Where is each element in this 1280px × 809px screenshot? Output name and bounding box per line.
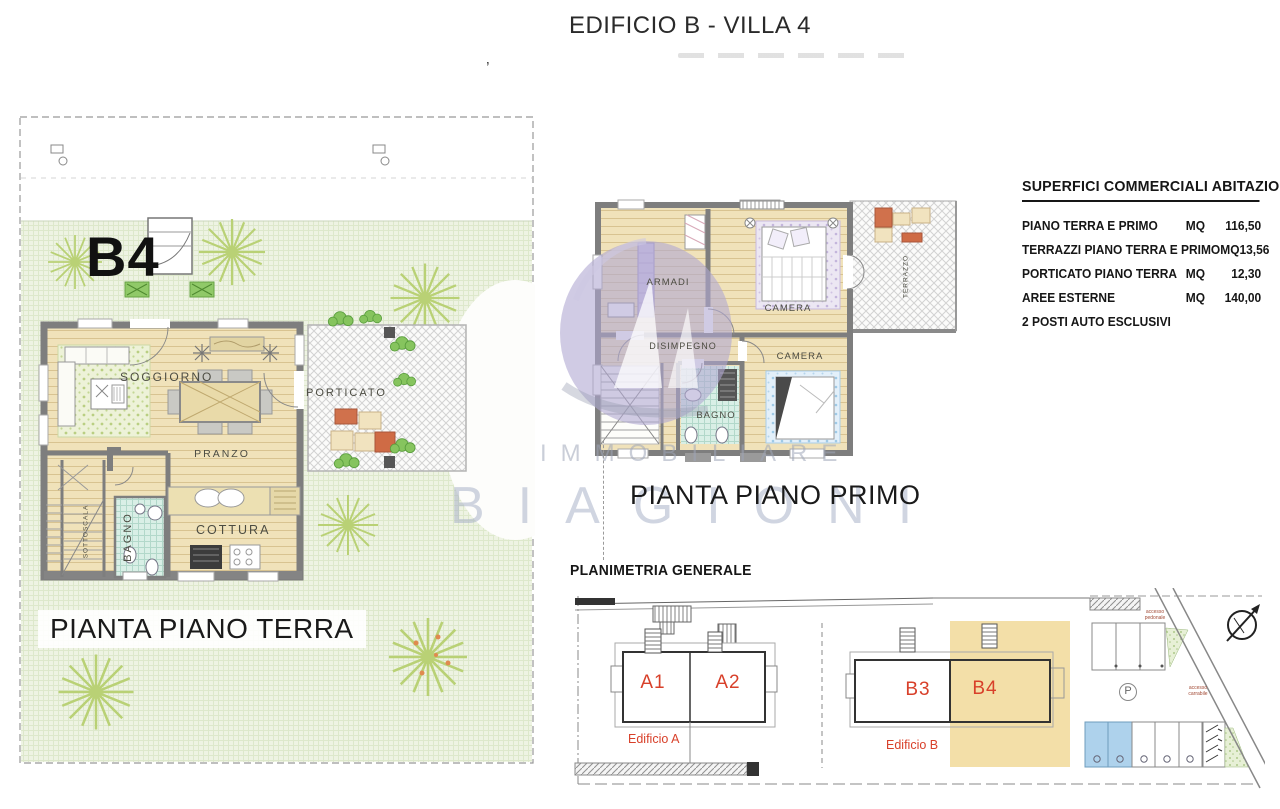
room-label-pranzo: PRANZO <box>192 448 252 460</box>
smudge-artifact <box>678 53 918 58</box>
watermark-logo <box>556 238 736 428</box>
room-label-camera1: CAMERA <box>758 303 818 314</box>
site-building-a-label: Edificio A <box>628 732 679 746</box>
page-title: EDIFICIO B - VILLA 4 <box>440 12 940 40</box>
access-vehicle-label: accesso carrabile <box>1181 686 1215 697</box>
caption-first-floor: PIANTA PIANO PRIMO <box>618 477 933 514</box>
room-label-soggiorno: SOGGIORNO <box>120 370 210 384</box>
room-label-porticato: PORTICATO <box>306 387 378 399</box>
tree-icon <box>59 655 134 730</box>
parking-stalls-bottom <box>1085 722 1202 767</box>
site-plan-title: PLANIMETRIA GENERALE <box>570 562 752 579</box>
building-a <box>611 629 777 775</box>
site-unit-b3: B3 <box>898 679 938 701</box>
ground-floor-plan <box>18 115 535 765</box>
table-row: 2 POSTI AUTO ESCLUSIVI <box>1022 309 1261 333</box>
row-unit: MQ <box>1186 290 1219 305</box>
house-ground-floor <box>39 319 304 581</box>
room-label-bagno-ff: BAGNO <box>688 410 744 421</box>
parking-stalls-top <box>1092 623 1165 670</box>
row-label: 2 POSTI AUTO ESCLUSIVI <box>1022 314 1186 329</box>
compass-icon <box>1227 604 1260 641</box>
camera1-bed <box>745 218 840 309</box>
camera2-bed <box>766 371 840 443</box>
site-unit-b4: B4 <box>965 678 1005 700</box>
row-label: PORTICATO PIANO TERRA <box>1022 266 1186 281</box>
room-label-bagno-gf: BAGNO <box>122 509 134 565</box>
unit-label-b4: B4 <box>86 224 160 289</box>
site-building-b-label: Edificio B <box>886 738 938 752</box>
row-label: AREE ESTERNE <box>1022 290 1186 305</box>
ramp-hatch <box>1203 722 1225 767</box>
flower-tree-icon <box>389 618 467 696</box>
row-unit: MQ <box>1186 218 1219 233</box>
caption-ground-floor: PIANTA PIANO TERRA <box>38 610 366 648</box>
row-value: 116,50 <box>1219 218 1261 233</box>
row-value: 12,30 <box>1219 266 1261 281</box>
row-value: 13,56 <box>1240 242 1270 257</box>
room-label-disimpegno: DISIMPEGNO <box>648 341 718 351</box>
stray-mark: ’ <box>486 60 490 78</box>
hatched-strip <box>1090 598 1140 610</box>
surfaces-table: SUPERFICI COMMERCIALI ABITAZIONE PIANO T… <box>1022 178 1262 333</box>
tree-icon <box>391 264 460 333</box>
architectural-sheet: { "page": { "title": "EDIFICIO B - VILLA… <box>0 0 1280 809</box>
surfaces-table-title: SUPERFICI COMMERCIALI ABITAZIONE <box>1022 178 1260 202</box>
row-value: 140,00 <box>1219 290 1261 305</box>
site-unit-a2: A2 <box>708 672 748 694</box>
reference-dash-line <box>603 440 604 560</box>
table-row: PORTICATO PIANO TERRA MQ 12,30 <box>1022 261 1261 285</box>
parking-letter: P <box>1121 685 1135 697</box>
room-label-armadi: ARMADI <box>640 277 696 288</box>
watermark-line1: IMMOBILIARE <box>540 440 851 468</box>
row-unit: MQ <box>1220 242 1239 257</box>
table-row: TERRAZZI PIANO TERRA E PRIMO MQ 13,56 <box>1022 237 1261 261</box>
room-label-camera2: CAMERA <box>770 351 830 362</box>
table-row: PIANO TERRA E PRIMO MQ 116,50 <box>1022 213 1261 237</box>
room-label-terrazzo: TERRAZZO <box>903 249 910 305</box>
table-row: AREE ESTERNE MQ 140,00 <box>1022 285 1261 309</box>
row-unit: MQ <box>1186 266 1219 281</box>
soggiorno-furniture <box>58 345 150 437</box>
row-label: PIANO TERRA E PRIMO <box>1022 218 1186 233</box>
site-unit-a1: A1 <box>633 672 673 694</box>
green-verge <box>1225 728 1248 767</box>
access-pedestrian-label: accesso pedonale <box>1138 610 1172 621</box>
room-label-sottoscala: SOTTOSCALA <box>83 504 90 560</box>
sidewalk-hatch <box>575 763 747 775</box>
tree-icon <box>318 495 378 555</box>
green-verge <box>1166 628 1188 667</box>
room-label-cottura: COTTURA <box>196 523 266 537</box>
row-label: TERRAZZI PIANO TERRA E PRIMO <box>1022 242 1220 257</box>
